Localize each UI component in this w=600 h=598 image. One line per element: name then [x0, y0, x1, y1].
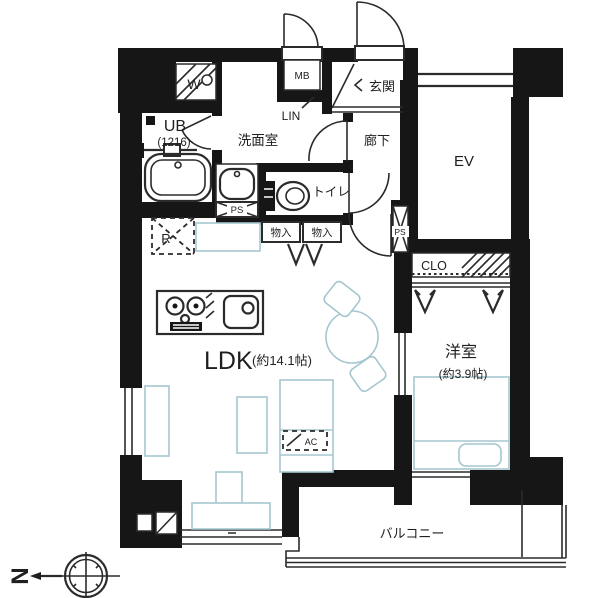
washer-label: W [187, 76, 201, 92]
entrance-arrow-mark [355, 79, 362, 91]
bath-vent [146, 116, 155, 125]
bathtub-inner [151, 160, 205, 195]
entrance-threshold [332, 107, 403, 112]
side-table [237, 397, 267, 453]
ldk-door [349, 214, 391, 256]
ldk-label: LDK [204, 347, 253, 375]
toilet-tank [262, 181, 275, 211]
service-box-plain [137, 514, 152, 531]
wall-segment [142, 202, 218, 218]
toilet-door [349, 173, 389, 213]
washroom-door [309, 121, 347, 161]
meter-box-door [284, 14, 318, 48]
pipe-space-label-2: PS [394, 227, 406, 237]
wall-segment [322, 60, 332, 114]
ev-top-wall [418, 74, 513, 86]
wall-segment [320, 48, 358, 62]
dining-table [326, 311, 378, 363]
compass-cross [48, 552, 120, 597]
meter-box-door-sill [282, 47, 322, 60]
elevator-label: EV [454, 153, 474, 170]
floorplan-page: { "floorplan": { "type": "apartment-floo… [0, 0, 600, 598]
wall-segment [510, 457, 563, 505]
western-room-size-label: (約3.9帖) [439, 366, 488, 381]
western-room-label: 洋室 [445, 343, 477, 361]
wall-segment [118, 100, 216, 113]
bed-pillow [459, 444, 501, 466]
unit-bath-label: UB [164, 118, 186, 135]
storage-folding-doors [288, 244, 322, 264]
toilet-bowl-inner [286, 188, 304, 204]
compass-north-label: N [6, 567, 33, 584]
meter-box-label: MB [295, 71, 310, 82]
stove-burner-1-center [173, 304, 178, 309]
wall-segment [513, 48, 563, 97]
ldk-left-window [125, 388, 132, 455]
stove-burner-2-center [194, 304, 199, 309]
sofa [145, 386, 169, 456]
wall-segment [394, 253, 412, 333]
unit-bath-size-label: (1216) [157, 137, 190, 149]
linen-label: LIN [282, 109, 301, 123]
storage-label-1: 物入 [271, 226, 292, 239]
entrance-door-sill [355, 46, 404, 60]
entrance-door [357, 2, 404, 49]
wall-segment [510, 253, 530, 457]
refrigerator-x [152, 218, 194, 254]
sink-faucet [243, 303, 254, 314]
wall-segment [118, 48, 284, 62]
counter-hatch [206, 293, 214, 318]
service-block [137, 512, 177, 534]
balcony-right-wall [562, 505, 566, 558]
stove-grill [170, 322, 202, 331]
wall-segment [282, 487, 299, 537]
pipe-space-label-1: PS [231, 205, 244, 216]
low-table [216, 472, 242, 504]
rug [192, 503, 270, 529]
balcony-railing [286, 558, 566, 567]
bedroom-balcony-window [412, 472, 470, 477]
bathtub [145, 154, 211, 201]
floorplan-svg: N UB (1216) W MB 洗面室 LIN 玄関 廊下 EV トイレ PS… [0, 0, 600, 598]
bathtub-drain [175, 162, 181, 168]
closet-front-line [412, 283, 510, 287]
ldk-sliding-door [180, 530, 282, 544]
toilet-label: トイレ [312, 185, 350, 199]
closet-label: CLO [421, 259, 447, 273]
hallway-label: 廊下 [364, 133, 390, 148]
wall-segment [394, 470, 412, 505]
refrigerator-label: R [161, 231, 170, 246]
washer-drain [202, 75, 212, 85]
compass: N [6, 552, 121, 597]
closet-hanger-2 [483, 290, 503, 312]
stove-burner-3 [181, 315, 189, 323]
wall-segment [470, 470, 515, 505]
wall-segment [343, 160, 353, 173]
wall-segment [394, 395, 412, 470]
entrance-label: 玄関 [369, 79, 395, 94]
ac-label: AC [305, 437, 318, 447]
bath-faucet [133, 143, 144, 158]
wall-segment [511, 97, 529, 239]
wall-segment [403, 48, 418, 80]
kitchen-side-counter [196, 223, 260, 251]
storage-label-2: 物入 [312, 226, 333, 239]
wall-segment [394, 239, 530, 253]
bedroom-left-window [399, 333, 405, 395]
washroom-label: 洗面室 [238, 132, 279, 148]
wall-segment [256, 163, 348, 172]
wall-segment [132, 60, 176, 100]
tv-board [280, 380, 333, 472]
ldk-size-label: (約14.1帖) [252, 353, 312, 368]
entrance-step-line [332, 64, 354, 108]
closet-hanger-1 [415, 290, 435, 312]
balcony-label: バルコニー [380, 526, 445, 541]
wall-segment [120, 455, 142, 482]
